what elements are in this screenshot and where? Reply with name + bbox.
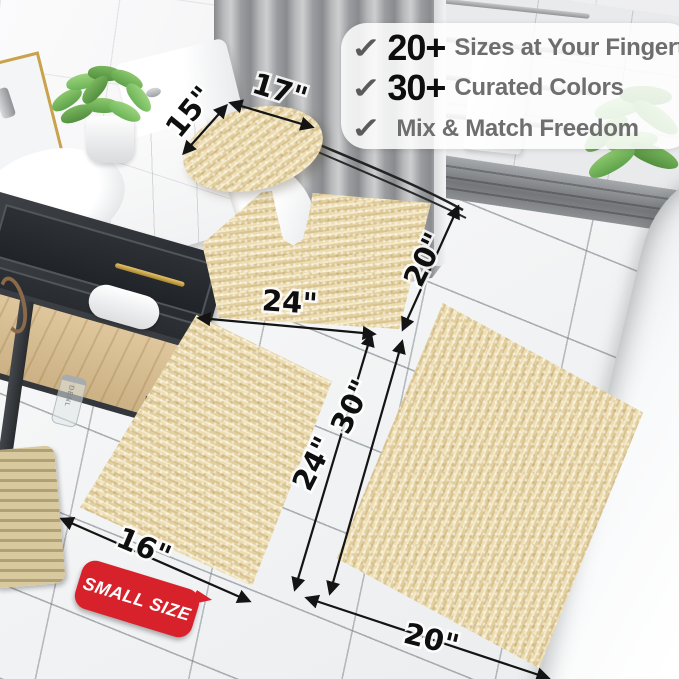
- callout-stat: 30+: [387, 67, 445, 109]
- callout-label: Mix & Match Freedom: [396, 115, 638, 143]
- check-icon: ✓: [351, 31, 381, 66]
- callout-row-sizes: ✓ 20+ Sizes at Your Fingertips: [354, 29, 679, 67]
- drawer-handle: [115, 263, 186, 288]
- check-icon: ✓: [351, 71, 381, 106]
- callout-row-colors: ✓ 30+ Curated Colors: [354, 69, 679, 107]
- callout-stat: 20+: [387, 27, 445, 69]
- check-icon: ✓: [351, 111, 381, 146]
- callout-panel: ✓ 20+ Sizes at Your Fingertips ✓ 30+ Cur…: [341, 23, 679, 149]
- counter-plant: [48, 64, 163, 139]
- callout-row-mix-match: ✓ Mix & Match Freedom: [354, 110, 679, 148]
- callout-label: Sizes at Your Fingertips: [454, 34, 679, 62]
- product-image: DENL 17" 15" 24" 20" 16" 24" 30" 20": [0, 0, 679, 679]
- jar-label: DENL: [63, 384, 75, 408]
- callout-label: Curated Colors: [454, 74, 623, 102]
